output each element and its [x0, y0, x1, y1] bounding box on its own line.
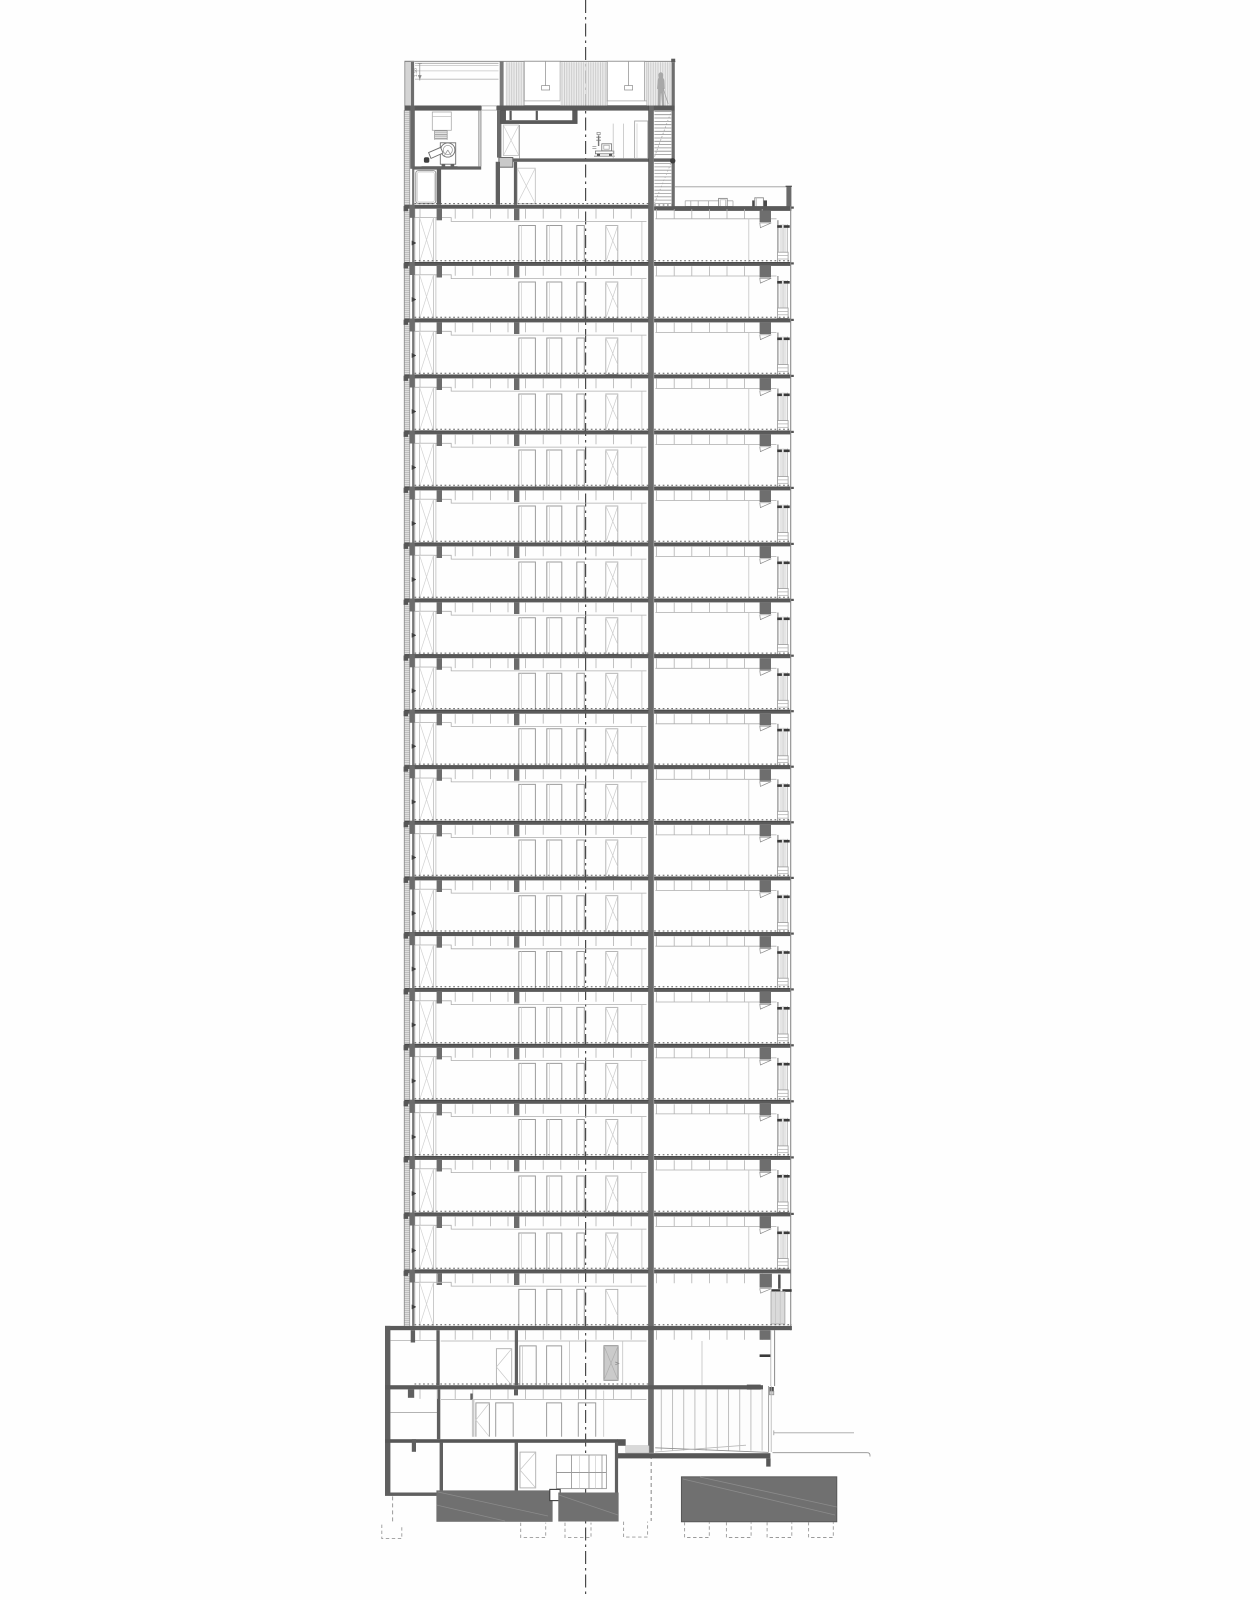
svg-text:1.10: 1.10	[413, 68, 418, 77]
